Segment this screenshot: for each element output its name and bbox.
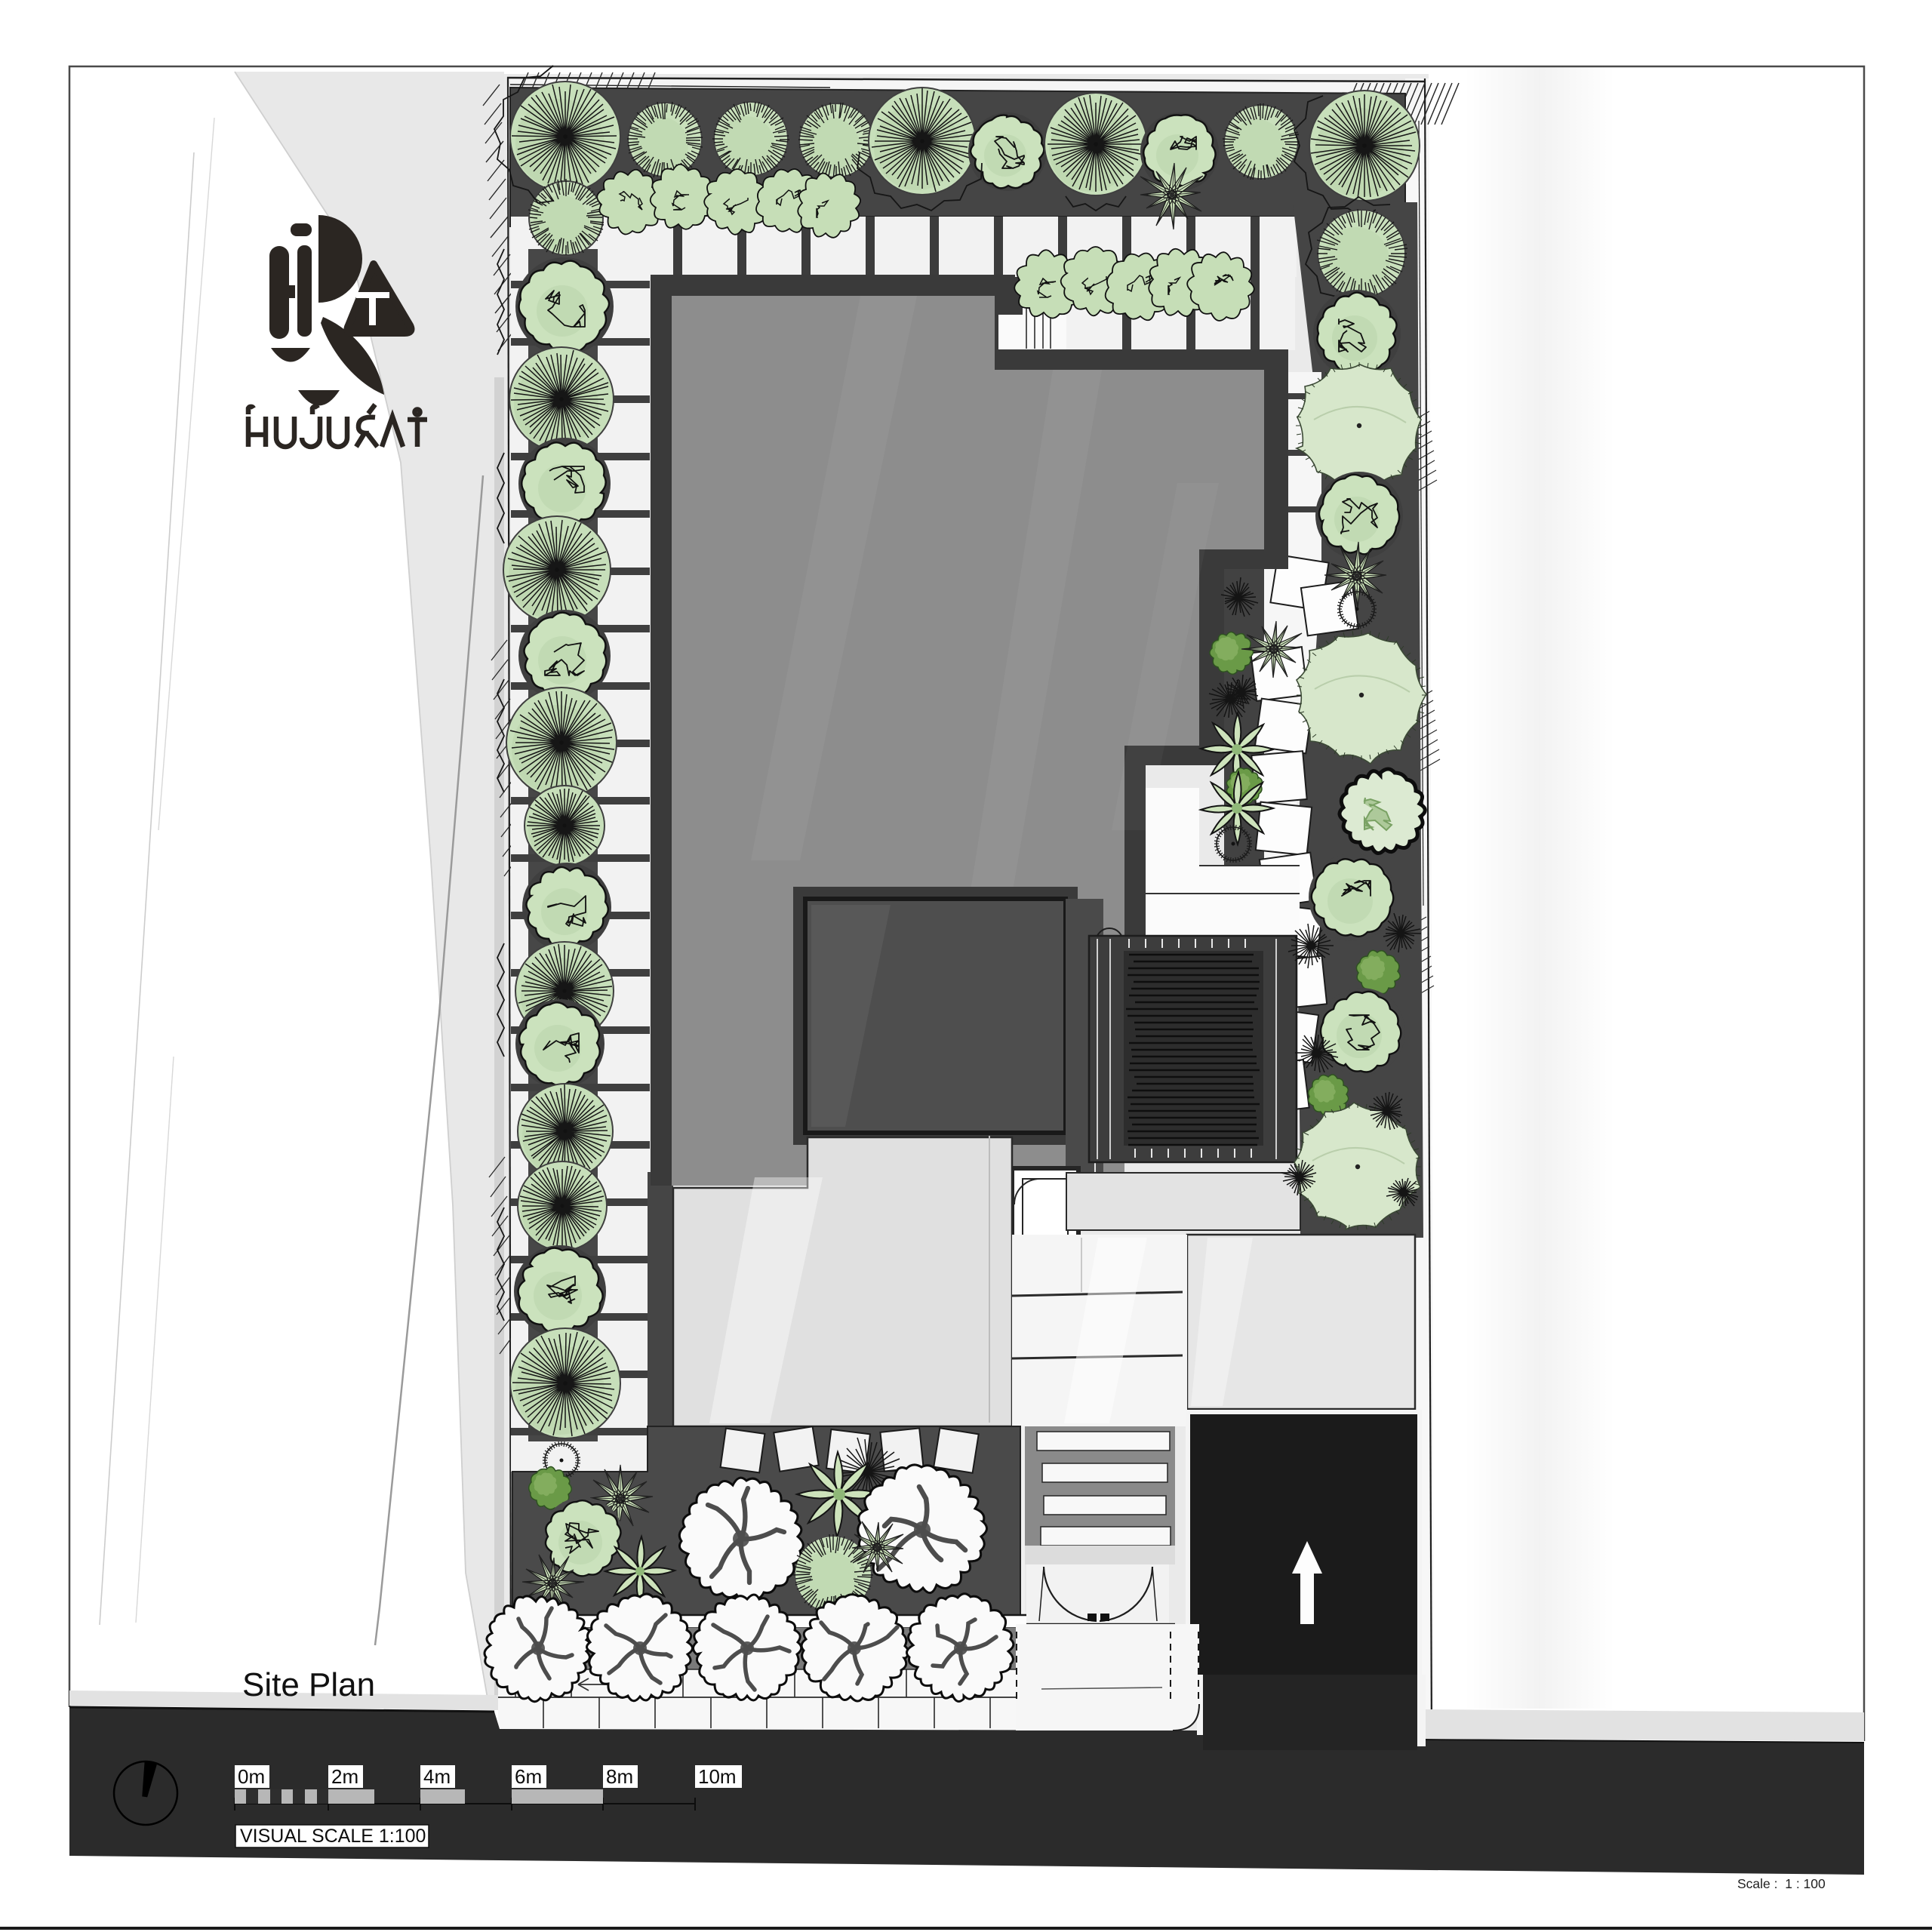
svg-text:Site Plan: Site Plan bbox=[242, 1666, 375, 1703]
svg-text:0m: 0m bbox=[238, 1765, 265, 1788]
svg-text:10m: 10m bbox=[698, 1765, 737, 1788]
svg-text:6m: 6m bbox=[515, 1765, 542, 1788]
svg-text:8m: 8m bbox=[606, 1765, 633, 1788]
svg-text:VISUAL SCALE 1:100: VISUAL SCALE 1:100 bbox=[240, 1826, 426, 1847]
svg-text:Scale : 1 : 100: Scale : 1 : 100 bbox=[1737, 1876, 1826, 1891]
svg-text:4m: 4m bbox=[423, 1765, 451, 1788]
svg-text:2m: 2m bbox=[331, 1765, 358, 1788]
